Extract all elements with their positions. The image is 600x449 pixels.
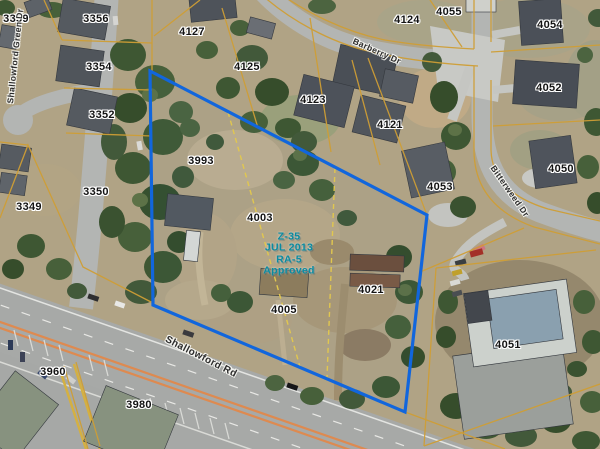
aerial-parcel-map[interactable]: 3359 3356 3354 3352 3350 3349 4127 4125 … bbox=[0, 0, 600, 449]
zoning-annotation: Z-35 JUL 2013 RA-5 Approved bbox=[263, 231, 314, 276]
parcel-label-4051: 4051 bbox=[495, 339, 521, 351]
parcel-label-4125: 4125 bbox=[234, 61, 260, 73]
parcel-label-4054: 4054 bbox=[537, 19, 563, 31]
parcel-label-4003: 4003 bbox=[247, 212, 273, 224]
parcel-label-4055: 4055 bbox=[436, 6, 462, 18]
parcel-label-4050: 4050 bbox=[548, 163, 574, 175]
parcel-label-3354: 3354 bbox=[86, 61, 112, 73]
parcel-label-3349: 3349 bbox=[16, 201, 42, 213]
parcel-label-3960: 3960 bbox=[40, 366, 66, 378]
parcel-label-4021: 4021 bbox=[358, 284, 384, 296]
zoning-date: JUL 2013 bbox=[263, 243, 314, 254]
parcel-label-4121: 4121 bbox=[377, 119, 403, 131]
parcel-label-3993: 3993 bbox=[188, 155, 214, 167]
parcel-label-3356: 3356 bbox=[83, 13, 109, 25]
zoning-status: Approved bbox=[263, 265, 314, 276]
parcel-label-4052: 4052 bbox=[536, 82, 562, 94]
parcel-label-3352: 3352 bbox=[89, 109, 115, 121]
house-4050 bbox=[529, 135, 577, 188]
parcel-label-3350: 3350 bbox=[83, 186, 109, 198]
parcel-label-4053: 4053 bbox=[427, 181, 453, 193]
cul-de-sac bbox=[3, 105, 33, 135]
parcel-label-3980: 3980 bbox=[126, 399, 152, 411]
parcel-label-4124: 4124 bbox=[394, 14, 420, 26]
parcel-label-4005: 4005 bbox=[271, 304, 297, 316]
parcel-label-4127: 4127 bbox=[179, 26, 205, 38]
parcel-label-4123: 4123 bbox=[300, 94, 326, 106]
